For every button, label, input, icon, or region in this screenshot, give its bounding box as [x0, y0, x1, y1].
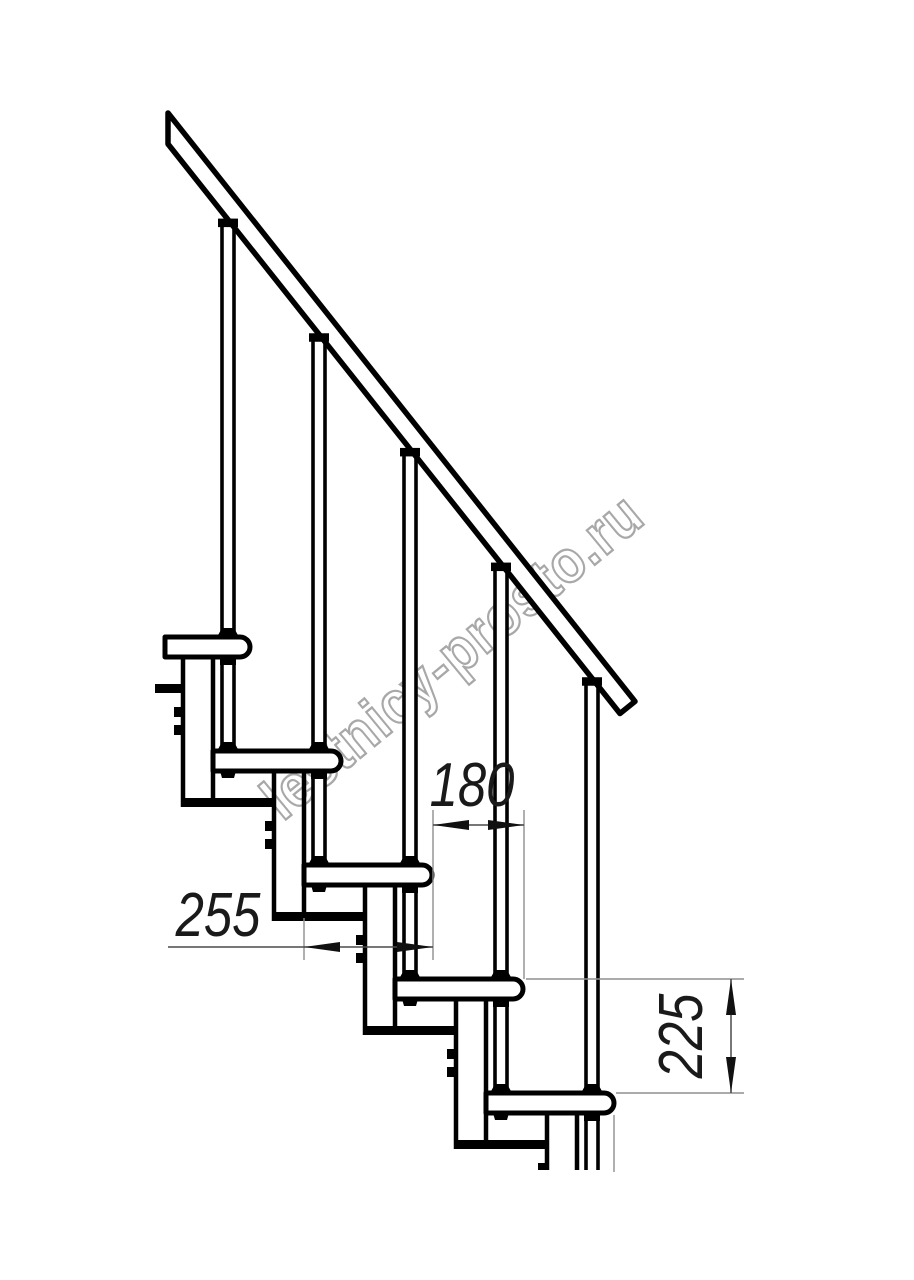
rod-end-nut	[493, 1113, 509, 1120]
rod-end-nut	[311, 885, 327, 892]
module-bolt	[174, 725, 184, 735]
module-bolt	[538, 1181, 548, 1191]
dimension-label: 180	[430, 751, 515, 820]
staircase-technical-drawing: 180255225	[0, 0, 914, 1280]
module-plate	[155, 684, 183, 693]
rod-segment	[308, 771, 330, 865]
baluster	[399, 449, 421, 865]
baluster-collar	[582, 677, 602, 686]
dimension-arrow	[726, 979, 736, 1015]
tread	[395, 979, 523, 999]
dimension-rise-225: 225	[526, 979, 744, 1172]
dimension-label: 255	[175, 881, 261, 950]
rod-end-nut	[220, 771, 236, 778]
dimension-arrow	[726, 1057, 736, 1093]
module-bolt	[356, 935, 366, 945]
module-bolt	[356, 953, 366, 963]
stair-structure	[155, 113, 635, 1191]
handrail	[168, 113, 635, 714]
module-plate	[274, 912, 365, 921]
dimension-arrow	[433, 820, 469, 830]
module-bolt	[265, 821, 275, 831]
module-bolt	[447, 1049, 457, 1059]
baluster-collar	[309, 333, 329, 342]
module-bolt	[265, 839, 275, 849]
baluster-collar	[218, 219, 238, 228]
baluster	[308, 334, 330, 751]
technical-drawing-page: lestnicy-prosto.ru 180255225	[0, 0, 914, 1280]
dimension-arrow	[304, 942, 340, 952]
module-plate	[183, 798, 274, 807]
tread	[165, 637, 250, 657]
dimension-label: 225	[647, 993, 716, 1079]
module-bolt	[174, 707, 184, 717]
dimension-run-180: 180	[430, 751, 524, 979]
rod-segment	[217, 657, 239, 751]
module-bolt	[538, 1163, 548, 1173]
module-plate	[456, 1140, 547, 1149]
rod-end-nut	[402, 999, 418, 1006]
tread	[304, 865, 432, 885]
rod-segment	[584, 1113, 600, 1174]
tread	[213, 751, 341, 771]
baluster	[217, 220, 239, 637]
baluster-collar	[491, 563, 511, 572]
tread	[486, 1093, 614, 1113]
rod-segment	[490, 999, 512, 1093]
baluster-collar	[400, 448, 420, 457]
support-module	[538, 1113, 577, 1191]
module-plate	[365, 1026, 456, 1035]
baluster	[581, 678, 603, 1093]
module-bolt	[447, 1067, 457, 1077]
rod-segment	[399, 885, 421, 979]
